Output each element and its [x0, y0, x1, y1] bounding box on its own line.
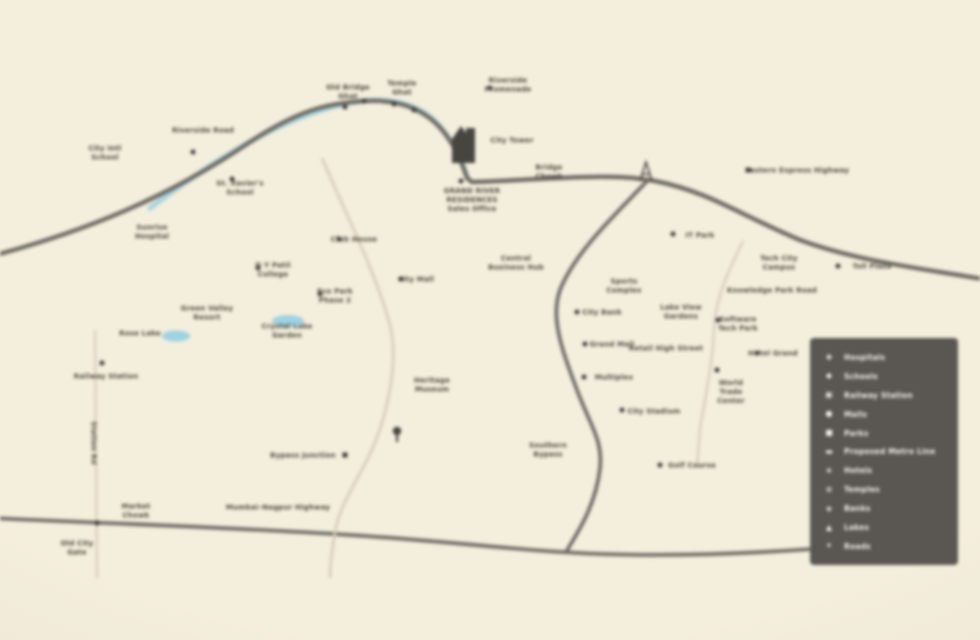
- project-building-icon: [452, 126, 475, 163]
- hotel-icon: ★: [822, 467, 836, 475]
- legend-item: ★Hotels: [822, 464, 948, 477]
- mall-icon: ●: [822, 410, 836, 418]
- marker-dot: [575, 310, 580, 315]
- legend-label: Roads: [844, 542, 871, 551]
- map-label: Temple Ghat: [387, 79, 416, 97]
- park-icon: ■: [822, 429, 836, 437]
- marker-dot: [583, 342, 588, 347]
- map-label: Multiplex: [595, 374, 634, 383]
- legend-item: ●Malls: [822, 408, 948, 421]
- legend-label: Malls: [844, 410, 867, 419]
- marker-dot: [392, 102, 397, 107]
- map-label: Bypass Junction: [270, 452, 336, 461]
- map-label: Mumbai–Nagpur Highway: [226, 504, 330, 513]
- marker-dot: [95, 521, 100, 526]
- map-label: Market Chowk: [122, 502, 151, 520]
- map-label: IT Park: [686, 232, 715, 241]
- legend-label: Schools: [844, 372, 878, 381]
- temple-icon: ⊕: [822, 486, 836, 494]
- map-label: Station Rd: [89, 421, 98, 465]
- map-label: Retail High Street: [629, 345, 703, 354]
- marker-dot: [100, 361, 105, 366]
- marker-dot: [337, 237, 342, 242]
- legend-panel: ✚Hospitals◆Schools▣Railway Station●Malls…: [810, 338, 958, 565]
- map-label: Heritage Museum: [414, 376, 450, 394]
- legend-label: Hospitals: [844, 353, 885, 362]
- river-path: [150, 100, 468, 208]
- map-label: Sports Complex: [606, 277, 641, 295]
- map-label: Toll Plaza: [853, 263, 892, 272]
- map-label: GRAND RIVER RESIDENCES Sales Office: [444, 187, 500, 213]
- marker-dot: [658, 463, 663, 468]
- marker-dot: [671, 232, 676, 237]
- map-label: Eastern Express Highway: [745, 167, 849, 176]
- map-label: City Stadium: [627, 408, 680, 417]
- marker-dot: [715, 368, 720, 373]
- legend-item: ⊕Temples: [822, 483, 948, 496]
- legend-item: ▲Lakes: [822, 521, 948, 534]
- secondary-road-right: [697, 241, 743, 468]
- marker-dot: [399, 277, 404, 282]
- marker-dot: [256, 266, 261, 271]
- marker-dot: [459, 179, 464, 184]
- legend-label: Temples: [844, 485, 880, 494]
- map-label: Rose Lake: [119, 330, 161, 339]
- marker-dot: [191, 150, 196, 155]
- map-label: Knowledge Park Road: [727, 287, 817, 296]
- legend-item: ■Parks: [822, 427, 948, 440]
- map-canvas: City Intl SchoolRiverside RoadSt. Xavier…: [0, 0, 980, 640]
- legend-item: ✚Hospitals: [822, 351, 948, 364]
- legend-label: Proposed Metro Line: [844, 447, 936, 456]
- railway-icon: ▣: [822, 391, 836, 399]
- school-icon: ◆: [822, 372, 836, 380]
- legend-label: Hotels: [844, 466, 872, 475]
- map-label: City Bank: [582, 309, 621, 318]
- map-label: Old City Gate: [61, 539, 94, 557]
- marker-dot: [362, 99, 367, 104]
- lake-shape: [162, 331, 190, 342]
- map-label: Green Valley Resort: [181, 304, 233, 322]
- map-label: World Trade Center: [717, 379, 745, 405]
- legend-item: ◆Schools: [822, 370, 948, 383]
- marker-dot: [343, 105, 348, 110]
- map-label: Southern Bypass: [529, 441, 567, 459]
- map-label: Railway Station: [74, 373, 139, 382]
- map-label: Central Business Hub: [488, 254, 544, 272]
- fork-road-path: [556, 180, 648, 552]
- lake-icon: ▲: [822, 524, 836, 532]
- map-label: Sunrise Hospital: [135, 223, 169, 241]
- map-label: City Mall: [398, 276, 434, 285]
- map-label: Crystal Lake Garden: [261, 322, 312, 340]
- marker-dot: [230, 177, 235, 182]
- map-label: Bridge Chowk: [535, 163, 562, 181]
- marker-dot: [582, 375, 587, 380]
- map-label: Lake View Gardens: [660, 303, 702, 321]
- legend-label: Parks: [844, 429, 869, 438]
- bank-icon: ◈: [822, 505, 836, 513]
- legend-item: ✦Roads: [822, 540, 948, 553]
- secondary-road-center: [322, 158, 393, 578]
- legend-label: Banks: [844, 504, 871, 513]
- marker-dot: [747, 168, 752, 173]
- map-label: Tech City Campus: [760, 254, 797, 272]
- marker-dot: [836, 264, 841, 269]
- marker-dot: [412, 108, 417, 113]
- legend-item: ◈Banks: [822, 502, 948, 515]
- map-label: Riverside Road: [172, 127, 234, 136]
- legend-label: Railway Station: [844, 391, 913, 400]
- map-label: D Y Patil College: [255, 261, 290, 279]
- legend-label: Lakes: [844, 523, 869, 532]
- location-map: City Intl SchoolRiverside RoadSt. Xavier…: [0, 0, 980, 640]
- map-label: City Tower: [490, 137, 533, 146]
- metro-line-icon: ▬: [822, 448, 836, 456]
- road-icon: ✦: [822, 542, 836, 550]
- marker-dot: [318, 292, 323, 297]
- map-label: St. Xavier's School: [216, 179, 263, 197]
- map-label: Eco Park Phase 2: [317, 287, 353, 305]
- marker-dot: [716, 318, 721, 323]
- bottom-road-path: [0, 518, 812, 555]
- hospital-icon: ✚: [822, 354, 836, 362]
- map-label: Software Tech Park: [718, 315, 758, 333]
- map-label: Riverside Promenade: [485, 76, 532, 94]
- legend-item: ▬Proposed Metro Line: [822, 445, 948, 458]
- marker-dot: [755, 351, 760, 356]
- marker-square: [343, 453, 348, 458]
- map-label: Grand Mall: [590, 341, 635, 350]
- tree-icon: [393, 427, 401, 442]
- map-label: Golf Course: [668, 462, 716, 471]
- legend-item: ▣Railway Station: [822, 389, 948, 402]
- marker-dot: [488, 86, 493, 91]
- marker-dot: [620, 408, 625, 413]
- map-label: City Intl School: [88, 144, 121, 162]
